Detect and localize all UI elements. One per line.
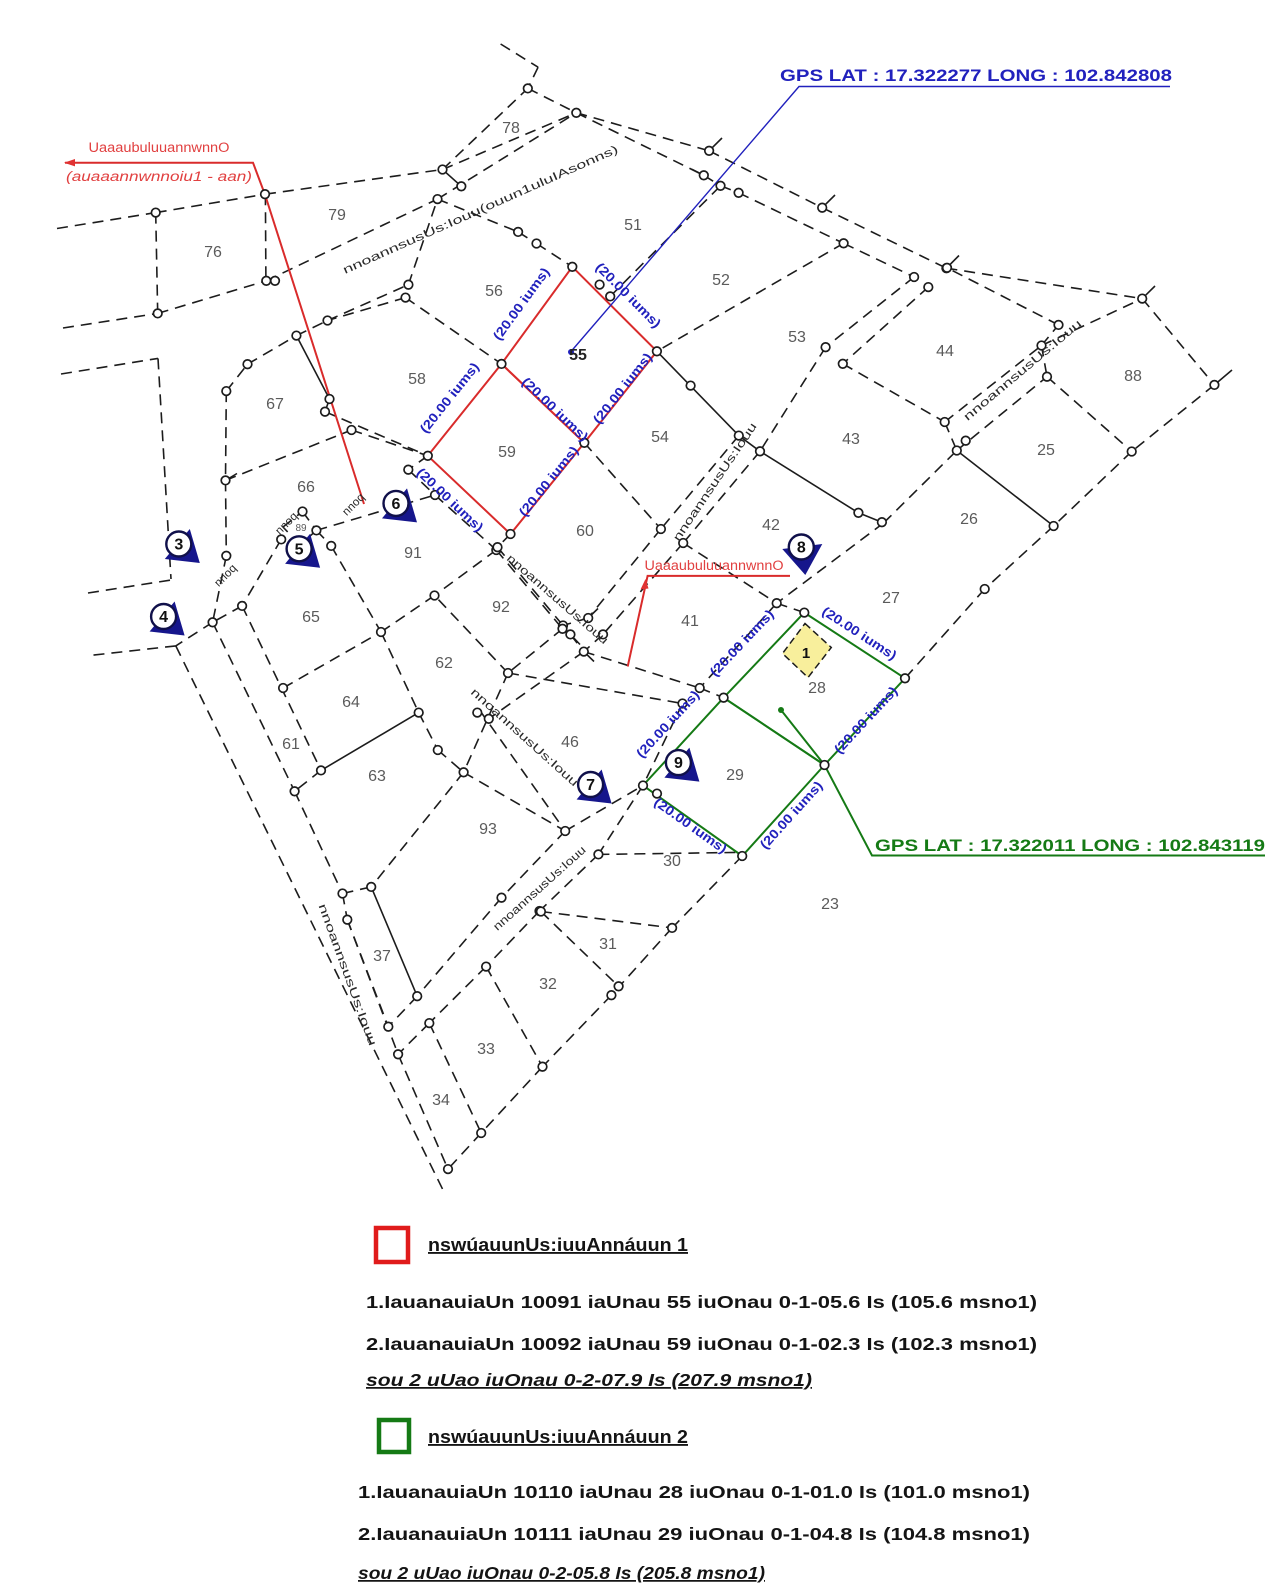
svg-text:1.IauanauiaUn 10110 iaUnau 28: 1.IauanauiaUn 10110 iaUnau 28 iuOnau 0-1… bbox=[358, 1482, 1030, 1502]
svg-text:41: 41 bbox=[681, 613, 699, 630]
svg-text:4: 4 bbox=[159, 609, 168, 626]
svg-text:62: 62 bbox=[435, 655, 453, 672]
svg-text:67: 67 bbox=[266, 396, 284, 413]
svg-text:29: 29 bbox=[726, 767, 744, 784]
svg-text:GPS LAT : 17.322011 LONG: GPS LAT : 17.322011 LONG : 102.843119 bbox=[875, 837, 1265, 855]
svg-text:UaaaubuluuannwnnO: UaaaubuluuannwnnO bbox=[89, 140, 230, 155]
svg-text:54: 54 bbox=[651, 429, 669, 446]
svg-text:42: 42 bbox=[762, 517, 780, 534]
svg-text:33: 33 bbox=[477, 1041, 495, 1058]
svg-text:GPS LAT : 17.322277 LONG: GPS LAT : 17.322277 LONG : 102.842808 bbox=[780, 67, 1172, 85]
svg-text:89: 89 bbox=[295, 523, 307, 534]
svg-text:UaaaubuluuannwnnO: UaaaubuluuannwnnO bbox=[645, 558, 784, 573]
svg-text:1.IauanauiaUn 10091 iaUnau 55: 1.IauanauiaUn 10091 iaUnau 55 iuOnau 0-1… bbox=[366, 1292, 1037, 1312]
svg-text:61: 61 bbox=[282, 736, 300, 753]
svg-text:46: 46 bbox=[561, 734, 579, 751]
svg-text:1: 1 bbox=[802, 645, 810, 662]
svg-text:28: 28 bbox=[808, 680, 826, 697]
svg-text:9: 9 bbox=[674, 755, 683, 772]
svg-text:66: 66 bbox=[297, 479, 315, 496]
svg-text:sou 2 uUao iuOnau 0-2-07.9 Is: sou 2 uUao iuOnau 0-2-07.9 Is (207.9 msn… bbox=[366, 1370, 812, 1390]
svg-text:23: 23 bbox=[821, 896, 839, 913]
svg-text:32: 32 bbox=[539, 976, 557, 993]
svg-text:79: 79 bbox=[328, 207, 346, 224]
svg-text:sou 2 uUao iuOnau 0-2-05.8 Is: sou 2 uUao iuOnau 0-2-05.8 Is (205.8 msn… bbox=[358, 1563, 765, 1583]
svg-text:43: 43 bbox=[842, 431, 860, 448]
svg-text:6: 6 bbox=[392, 496, 401, 513]
svg-text:31: 31 bbox=[599, 936, 617, 953]
svg-text:63: 63 bbox=[368, 768, 386, 785]
svg-text:37: 37 bbox=[373, 948, 391, 965]
svg-text:59: 59 bbox=[498, 444, 516, 461]
svg-text:88: 88 bbox=[1124, 368, 1142, 385]
svg-text:60: 60 bbox=[576, 523, 594, 540]
svg-text:93: 93 bbox=[479, 821, 497, 838]
svg-text:56: 56 bbox=[485, 283, 503, 300]
svg-text:55: 55 bbox=[569, 347, 587, 364]
svg-text:34: 34 bbox=[432, 1092, 450, 1109]
svg-text:52: 52 bbox=[712, 272, 730, 289]
svg-text:3: 3 bbox=[174, 537, 183, 554]
svg-text:51: 51 bbox=[624, 217, 642, 234]
svg-text:44: 44 bbox=[936, 343, 954, 360]
svg-text:nswúauunUs:iuuAnnáuun 2: nswúauunUs:iuuAnnáuun 2 bbox=[428, 1426, 688, 1447]
svg-text:78: 78 bbox=[502, 120, 520, 137]
svg-text:7: 7 bbox=[586, 777, 595, 794]
svg-text:25: 25 bbox=[1037, 442, 1055, 459]
svg-text:76: 76 bbox=[204, 244, 222, 261]
svg-text:5: 5 bbox=[295, 541, 304, 558]
svg-text:53: 53 bbox=[788, 329, 806, 346]
svg-text:92: 92 bbox=[492, 599, 510, 616]
svg-text:64: 64 bbox=[342, 694, 360, 711]
svg-text:2.IauanauiaUn 10092 iaUnau 59: 2.IauanauiaUn 10092 iaUnau 59 iuOnau 0-1… bbox=[366, 1334, 1037, 1354]
svg-text:27: 27 bbox=[882, 590, 900, 607]
svg-text:91: 91 bbox=[404, 545, 422, 562]
svg-text:2.IauanauiaUn 10111 iaUnau 29: 2.IauanauiaUn 10111 iaUnau 29 iuOnau 0-1… bbox=[358, 1524, 1030, 1544]
svg-text:26: 26 bbox=[960, 511, 978, 528]
svg-text:58: 58 bbox=[408, 371, 426, 388]
svg-text:8: 8 bbox=[797, 540, 806, 557]
svg-text:nswúauunUs:iuuAnnáuun 1: nswúauunUs:iuuAnnáuun 1 bbox=[428, 1234, 688, 1255]
svg-text:65: 65 bbox=[302, 609, 320, 626]
svg-text:30: 30 bbox=[663, 853, 681, 870]
svg-text:(auaaannwnnoiu1 - aan): (auaaannwnnoiu1 - aan) bbox=[66, 169, 252, 184]
